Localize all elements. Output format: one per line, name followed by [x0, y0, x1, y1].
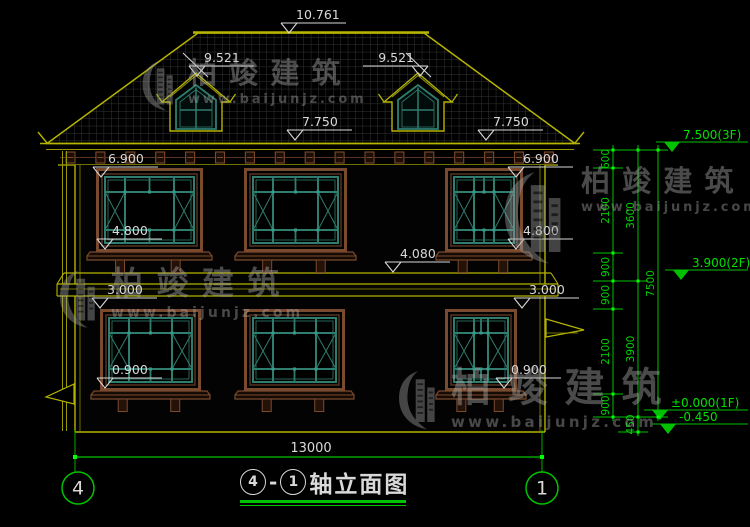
elevation-marker-label: 3.000: [529, 282, 565, 297]
level-marker-label: 7.500(3F): [683, 128, 741, 142]
axis-bubble: 1: [526, 472, 558, 504]
elevation-marker-label: 9.521: [204, 50, 240, 65]
dimension-chain: 60021009009002100900360039004507500: [593, 145, 668, 436]
level-marker: 3.900(2F): [665, 256, 750, 280]
dim-label: 900: [600, 257, 612, 277]
elevation-marker-label: 6.900: [523, 151, 559, 166]
title-underline-bottom: [240, 505, 406, 506]
sill-leg: [499, 260, 508, 273]
window: [91, 311, 210, 412]
dim-column: 60021009009002100900: [593, 145, 623, 421]
elevation-marker-label: 6.900: [108, 151, 144, 166]
axis-bubble: 4: [62, 472, 94, 504]
title-text: 轴立面图: [309, 465, 409, 499]
elevation-marker-label: 7.750: [493, 114, 529, 129]
sill-leg: [458, 260, 467, 273]
dim-label: 2100: [600, 197, 612, 224]
dim-label: 900: [600, 395, 612, 415]
title-dash: -: [269, 472, 277, 492]
title-underline-top: [240, 500, 406, 503]
dim-label: 450: [625, 414, 637, 434]
roof: [38, 33, 584, 150]
window: [436, 170, 532, 273]
sill-leg: [116, 260, 125, 273]
dim-label: 7500: [645, 270, 657, 297]
axis-bubble-label: 4: [72, 478, 84, 500]
axis-bubble-label: 1: [536, 478, 548, 500]
elevation-marker-label: 3.000: [107, 282, 143, 297]
level-marker: -0.450: [652, 410, 748, 434]
window: [436, 311, 526, 412]
sill-leg: [262, 399, 271, 412]
level-marker-label: 3.900(2F): [692, 256, 750, 270]
dim-label: 3600: [625, 202, 637, 229]
dim-label: 600: [600, 149, 612, 169]
dim-label: 3900: [625, 336, 637, 363]
dim-column: 7500: [638, 145, 668, 421]
title-axis-end: 1: [280, 469, 306, 495]
sill-leg: [263, 260, 272, 273]
elevation-marker-label: 4.800: [523, 223, 559, 238]
drawing-title: 4 - 1 轴立面图: [240, 465, 409, 499]
sill-leg: [118, 399, 127, 412]
elevation-marker-label: 0.900: [112, 362, 148, 377]
elevation-marker-label: 7.750: [302, 114, 338, 129]
level-markers-layer: 7.500(3F)3.900(2F)±0.000(1F)-0.450: [644, 128, 750, 434]
elevation-marker-label: 4.080: [400, 246, 436, 261]
dim-label: 900: [600, 285, 612, 305]
side-canopy-left: [46, 384, 74, 404]
level-marker: 7.500(3F): [656, 128, 748, 152]
sill-leg: [316, 260, 325, 273]
sill-leg: [171, 399, 180, 412]
sill-leg: [315, 399, 324, 412]
elevation-marker-label: 4.800: [112, 223, 148, 238]
elevation-marker-label: 9.521: [378, 50, 414, 65]
dim-label: 2100: [600, 338, 612, 365]
window: [235, 170, 356, 273]
title-axis-start: 4: [240, 469, 266, 495]
window: [235, 311, 354, 412]
level-marker-label: ±0.000(1F): [671, 396, 739, 410]
side-canopy-right: [546, 319, 584, 337]
sill-leg: [171, 260, 180, 273]
dim-column: 36003900450: [618, 145, 648, 436]
elevation-marker: 10.761: [281, 7, 346, 33]
sill-leg: [457, 399, 466, 412]
level-marker-label: -0.450: [679, 410, 718, 424]
elevation-drawing: 10.7619.5219.5217.7507.7506.9006.9004.80…: [0, 0, 750, 527]
sill-leg: [494, 399, 503, 412]
elevation-marker-label: 10.761: [296, 7, 340, 22]
window: [87, 170, 212, 273]
overall-dim-label: 13000: [290, 441, 331, 456]
elevation-marker-label: 0.900: [511, 362, 547, 377]
